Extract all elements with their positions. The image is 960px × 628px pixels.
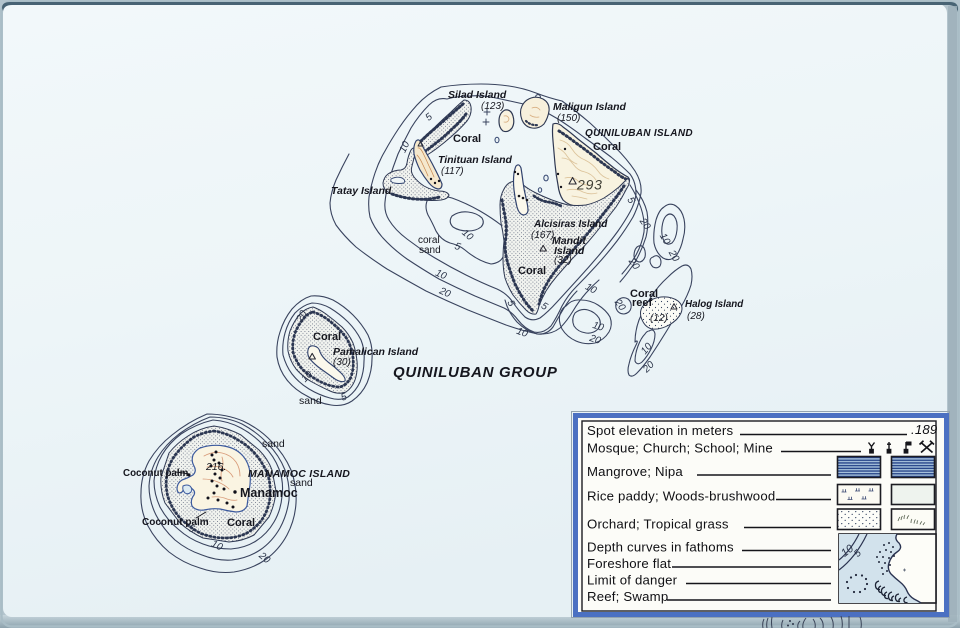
svg-text:(32): (32)	[554, 255, 572, 266]
svg-text:293: 293	[576, 177, 603, 193]
svg-text:Coral: Coral	[453, 133, 481, 145]
svg-text:Coral: Coral	[593, 141, 621, 153]
svg-text:Mangrove; Nipa: Mangrove; Nipa	[587, 464, 683, 479]
svg-text:.189: .189	[911, 422, 938, 437]
svg-text:(123): (123)	[481, 101, 504, 112]
svg-text:Tatay Island: Tatay Island	[331, 185, 392, 197]
svg-text:Rice paddy; Woods-brushwood: Rice paddy; Woods-brushwood	[587, 489, 775, 504]
svg-text:(28): (28)	[687, 311, 705, 322]
svg-text:sand: sand	[299, 395, 322, 407]
svg-text:Silad Island: Silad Island	[448, 89, 507, 101]
svg-text:Coral: Coral	[313, 331, 341, 343]
svg-text:Coconut palm: Coconut palm	[142, 517, 209, 528]
svg-text:Depth curves in fathoms: Depth curves in fathoms	[587, 540, 734, 555]
svg-text:(117): (117)	[441, 166, 464, 177]
svg-text:(12): (12)	[650, 313, 668, 324]
svg-text:216.: 216.	[205, 461, 226, 473]
svg-text:sand: sand	[419, 245, 441, 256]
svg-text:sand: sand	[262, 438, 285, 450]
svg-text:QUINILUBAN ISLAND: QUINILUBAN ISLAND	[585, 128, 693, 139]
svg-text:Foreshore flat: Foreshore flat	[587, 556, 671, 571]
svg-text:Orchard; Tropical grass: Orchard; Tropical grass	[587, 517, 729, 532]
svg-text:Maligun Island: Maligun Island	[553, 101, 627, 113]
svg-text:sand: sand	[290, 477, 313, 489]
svg-text:(150): (150)	[557, 113, 580, 124]
svg-text:Limit of danger: Limit of danger	[587, 573, 678, 588]
svg-text:Halog Island: Halog Island	[685, 299, 744, 310]
svg-text:Coconut palm: Coconut palm	[123, 468, 189, 479]
svg-text:(30): (30)	[333, 357, 351, 368]
svg-text:QUINILUBAN GROUP: QUINILUBAN GROUP	[393, 364, 558, 381]
svg-text:Mosque; Church; School; Mine: Mosque; Church; School; Mine	[587, 441, 773, 456]
svg-text:Spot elevation in meters: Spot elevation in meters	[587, 423, 733, 438]
svg-text:(167): (167)	[531, 230, 554, 241]
svg-text:Coral: Coral	[227, 517, 255, 529]
svg-text:Alcisiras Island: Alcisiras Island	[533, 219, 608, 230]
svg-text:reef: reef	[632, 297, 653, 309]
svg-text:Coral: Coral	[518, 265, 546, 277]
svg-text:Reef; Swamp: Reef; Swamp	[587, 589, 668, 604]
svg-text:Tinituan Island: Tinituan Island	[438, 154, 512, 166]
